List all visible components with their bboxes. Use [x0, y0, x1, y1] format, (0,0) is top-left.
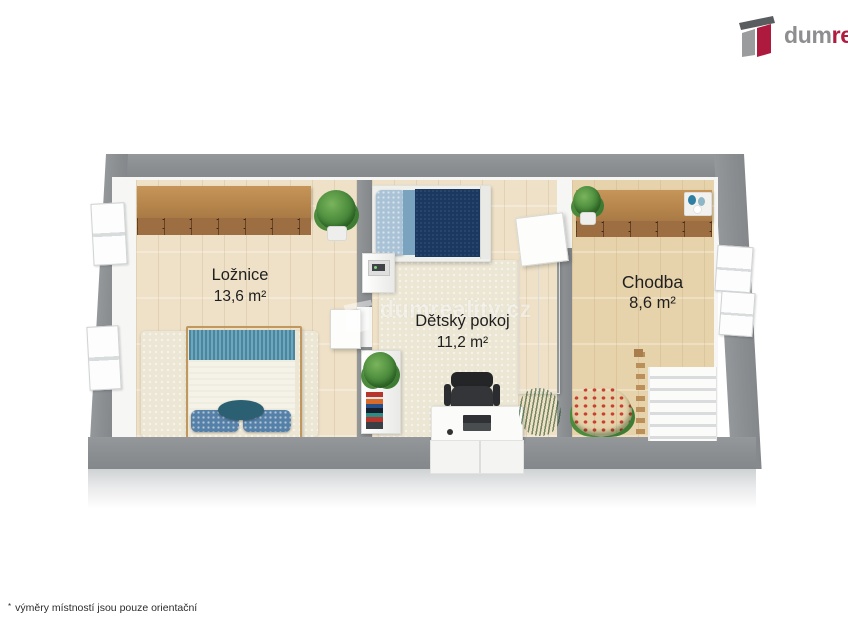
hallway-plant-pot — [580, 212, 596, 225]
room-label-detsky-pokoj: Dětský pokoj 11,2 m² — [385, 311, 540, 353]
logo-text-red: real — [832, 22, 848, 48]
decor-bottle-dark — [688, 195, 696, 205]
footnote-marker: * — [8, 602, 11, 611]
desk-drawers-front — [430, 440, 524, 474]
brand-logo-icon — [737, 13, 777, 57]
radio-led — [374, 266, 377, 269]
book-stack — [366, 392, 383, 429]
bed-round-cushion — [218, 400, 264, 420]
footnote-text: výměry místností jsou pouze orientační — [15, 602, 197, 614]
footnote: *výměry místností jsou pouze orientační — [8, 602, 197, 614]
bed-runner — [189, 330, 295, 360]
nightstand — [362, 253, 395, 293]
desk — [431, 406, 523, 442]
brand-logo-text: dumreal — [784, 13, 848, 57]
office-chair-armrest-right — [493, 384, 500, 406]
room-name: Ložnice — [165, 265, 315, 286]
double-bed — [186, 326, 302, 440]
corner-plant-grass — [519, 388, 561, 436]
radio-alarm — [368, 260, 390, 276]
stair-newel-post — [634, 349, 643, 357]
room-label-loznice: Ložnice 13,6 m² — [165, 265, 315, 307]
door-childrens-room-open — [515, 212, 569, 266]
room-name: Dětský pokoj — [385, 311, 540, 332]
single-bed — [372, 185, 491, 262]
shelf-plant — [363, 352, 397, 388]
room-area: 11,2 m² — [385, 332, 540, 353]
room-label-chodba: Chodba 8,6 m² — [580, 272, 725, 314]
window-left-2 — [86, 325, 121, 391]
potted-plant-bedroom — [316, 190, 356, 230]
bedroom-wardrobe — [137, 186, 311, 218]
room-name: Chodba — [580, 272, 725, 293]
floorplan-image: dumreal — [0, 0, 848, 636]
plant-pot-bedroom — [327, 226, 347, 241]
single-bed-footboard — [480, 186, 490, 259]
single-bed-pillow — [376, 190, 406, 255]
staircase — [648, 367, 717, 441]
mouse — [447, 429, 453, 435]
room-area: 8,6 m² — [580, 293, 725, 314]
wall-bottom-front-face — [88, 469, 756, 509]
stair-railing — [636, 352, 645, 440]
single-bed-duvet — [415, 189, 481, 257]
wall-bottom — [88, 437, 756, 469]
watermark-icon — [342, 296, 374, 334]
hallway-sideboard-front — [576, 221, 712, 237]
decor-ball — [693, 205, 702, 214]
bedroom-wardrobe-front — [137, 218, 311, 235]
room-area: 13,6 m² — [165, 286, 315, 307]
window-left-1 — [90, 202, 127, 266]
office-chair-armrest-left — [444, 384, 451, 406]
brand-logo: dumreal — [737, 13, 848, 57]
laptop — [463, 415, 491, 431]
decor-tray — [684, 192, 712, 216]
hallway-plant-flowering — [572, 386, 632, 436]
logo-text-gray: dum — [784, 22, 832, 48]
